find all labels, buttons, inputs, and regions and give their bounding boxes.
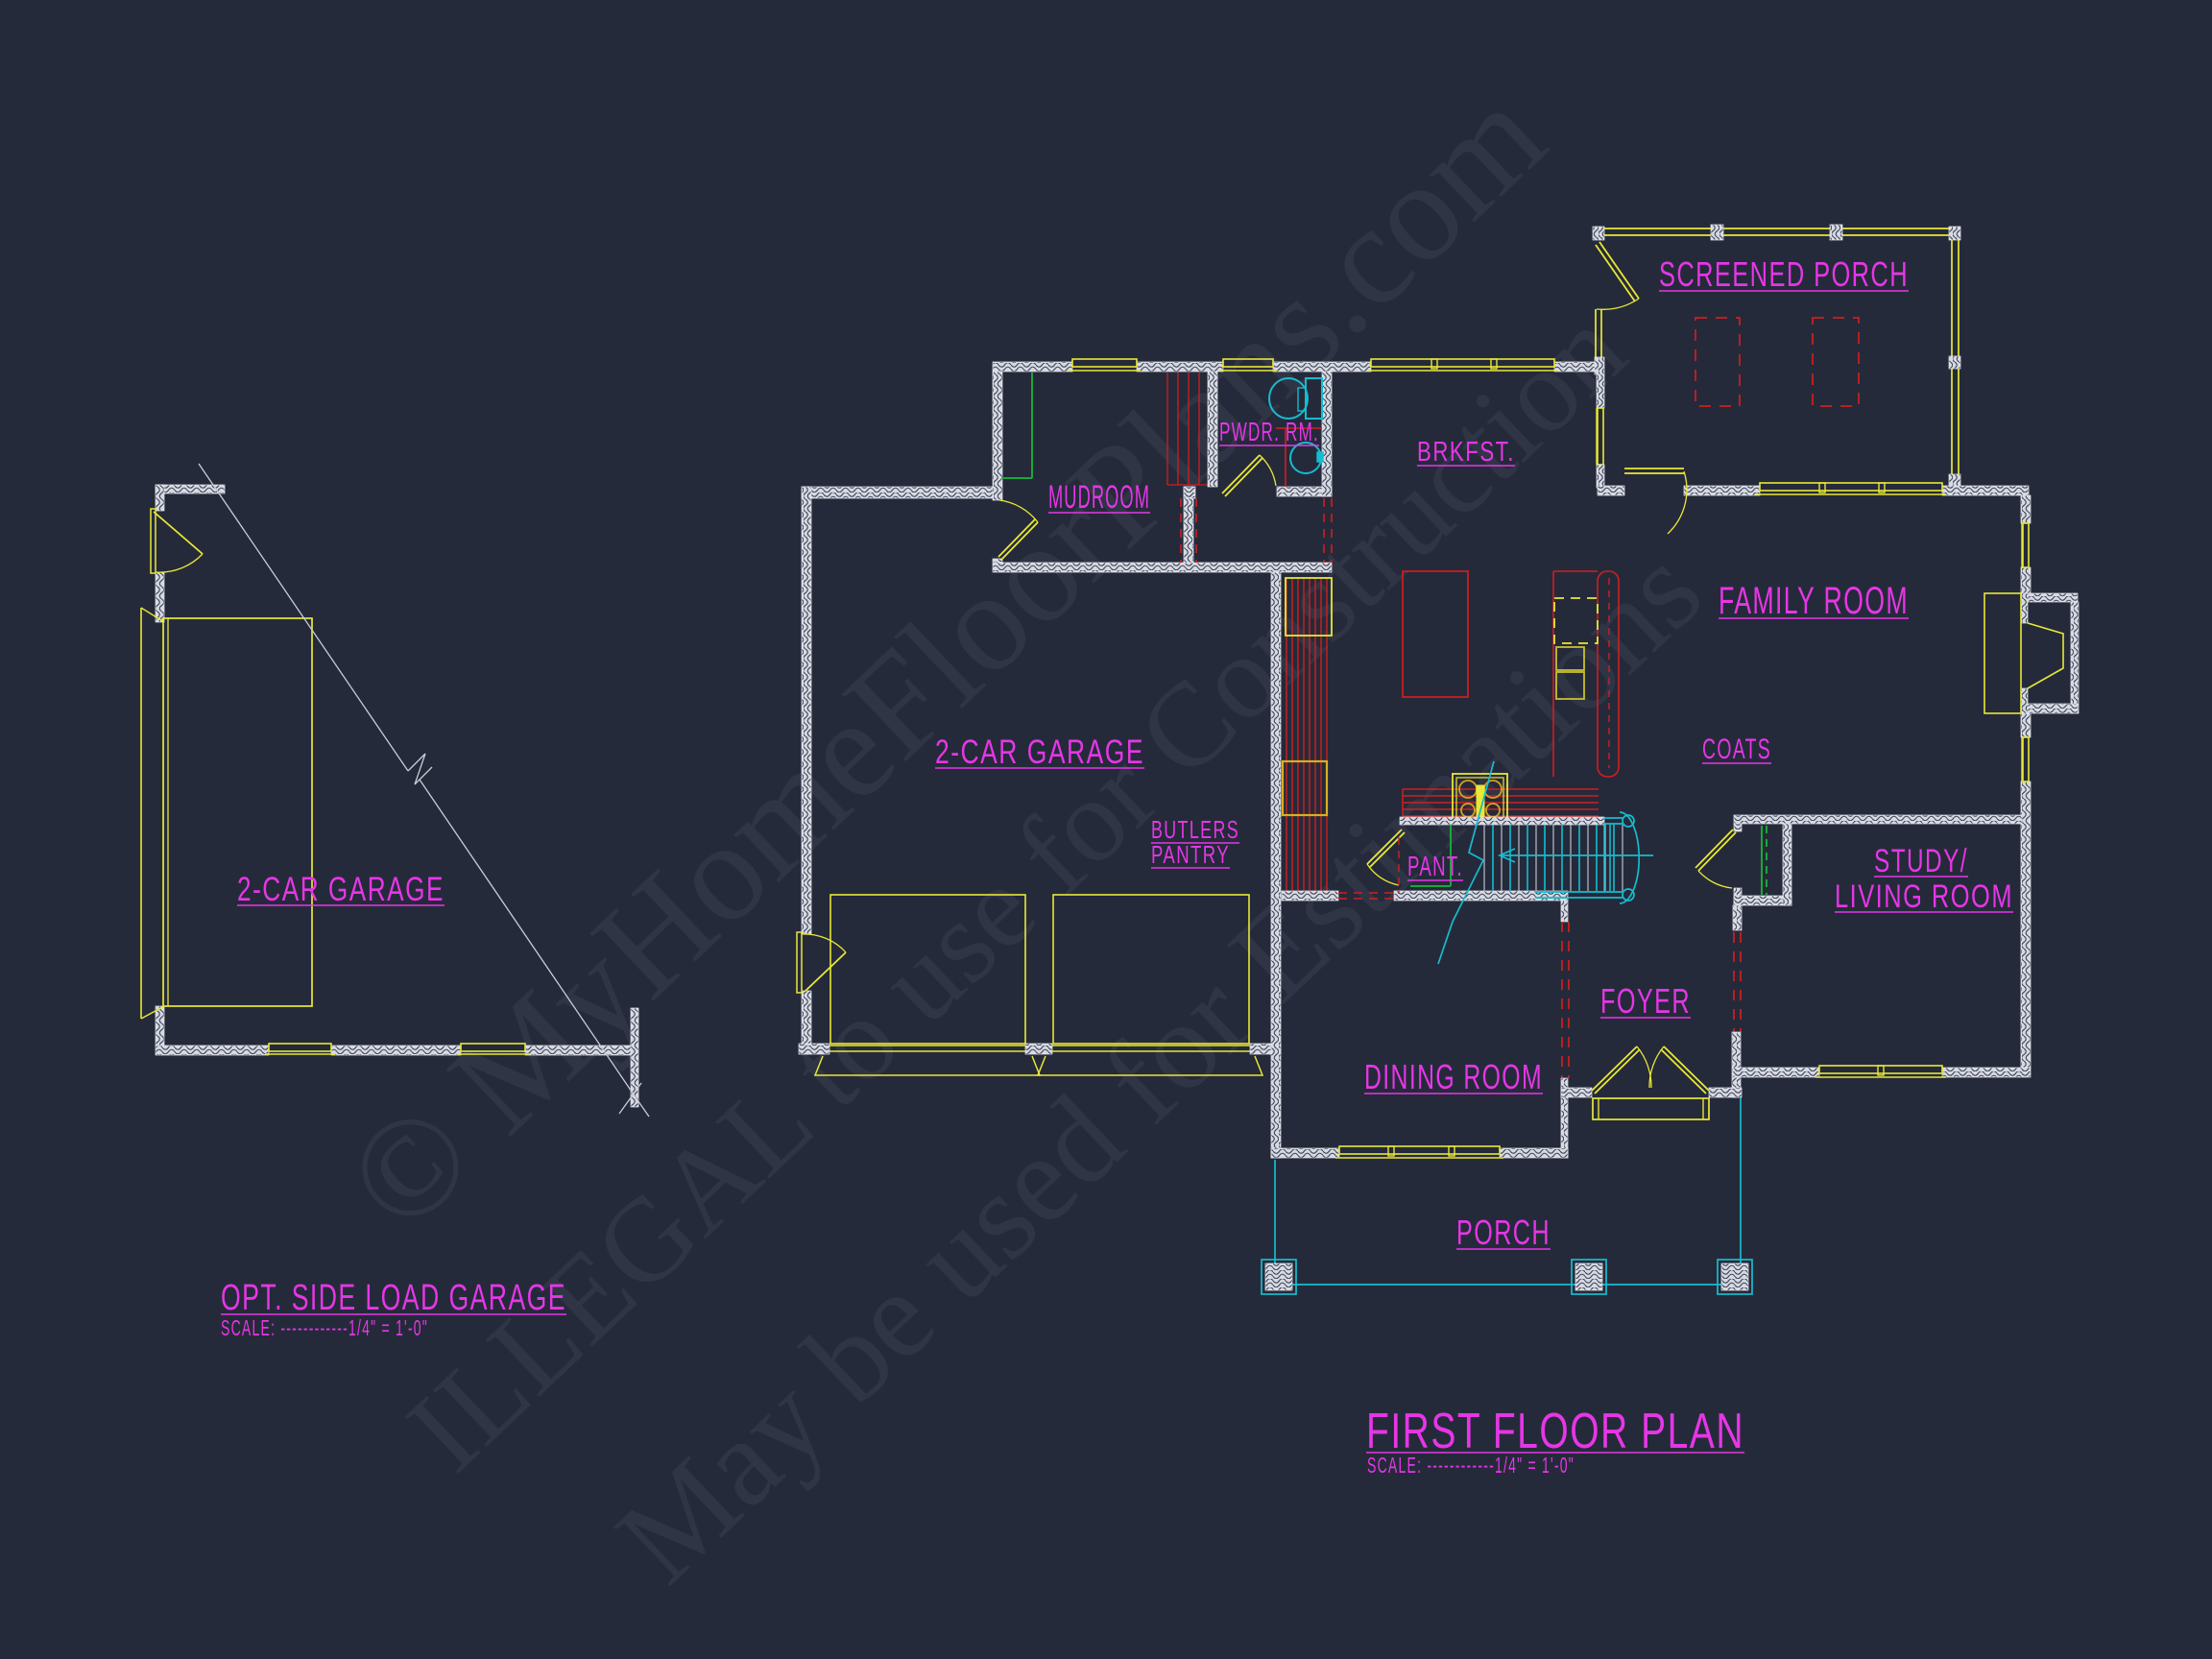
svg-text:SCALE: ------------1/4" = 1'-0: SCALE: ------------1/4" = 1'-0" (221, 1315, 428, 1340)
svg-text:SCALE: ------------1/4" = 1'-0: SCALE: ------------1/4" = 1'-0" (1367, 1453, 1575, 1478)
svg-text:MUDROOM: MUDROOM (1048, 479, 1150, 516)
svg-text:FIRST FLOOR PLAN: FIRST FLOOR PLAN (1366, 1404, 1744, 1459)
svg-text:PANT.: PANT. (1407, 852, 1463, 882)
svg-text:COATS: COATS (1702, 733, 1771, 765)
svg-text:FAMILY ROOM: FAMILY ROOM (1719, 580, 1909, 622)
svg-text:FOYER: FOYER (1600, 981, 1691, 1021)
svg-text:LIVING ROOM: LIVING ROOM (1835, 878, 2013, 915)
svg-text:PORCH: PORCH (1456, 1213, 1551, 1252)
svg-text:STUDY/: STUDY/ (1874, 843, 1968, 879)
svg-text:PANTRY: PANTRY (1151, 840, 1230, 869)
svg-text:2-CAR GARAGE: 2-CAR GARAGE (935, 733, 1144, 771)
svg-text:OPT. SIDE LOAD GARAGE: OPT. SIDE LOAD GARAGE (221, 1278, 566, 1318)
svg-text:DINING ROOM: DINING ROOM (1364, 1057, 1543, 1096)
svg-text:SCREENED PORCH: SCREENED PORCH (1659, 254, 1909, 294)
svg-text:2-CAR GARAGE: 2-CAR GARAGE (237, 871, 445, 908)
svg-text:PWDR. RM.: PWDR. RM. (1219, 417, 1319, 446)
svg-text:BRKFST.: BRKFST. (1417, 437, 1515, 468)
